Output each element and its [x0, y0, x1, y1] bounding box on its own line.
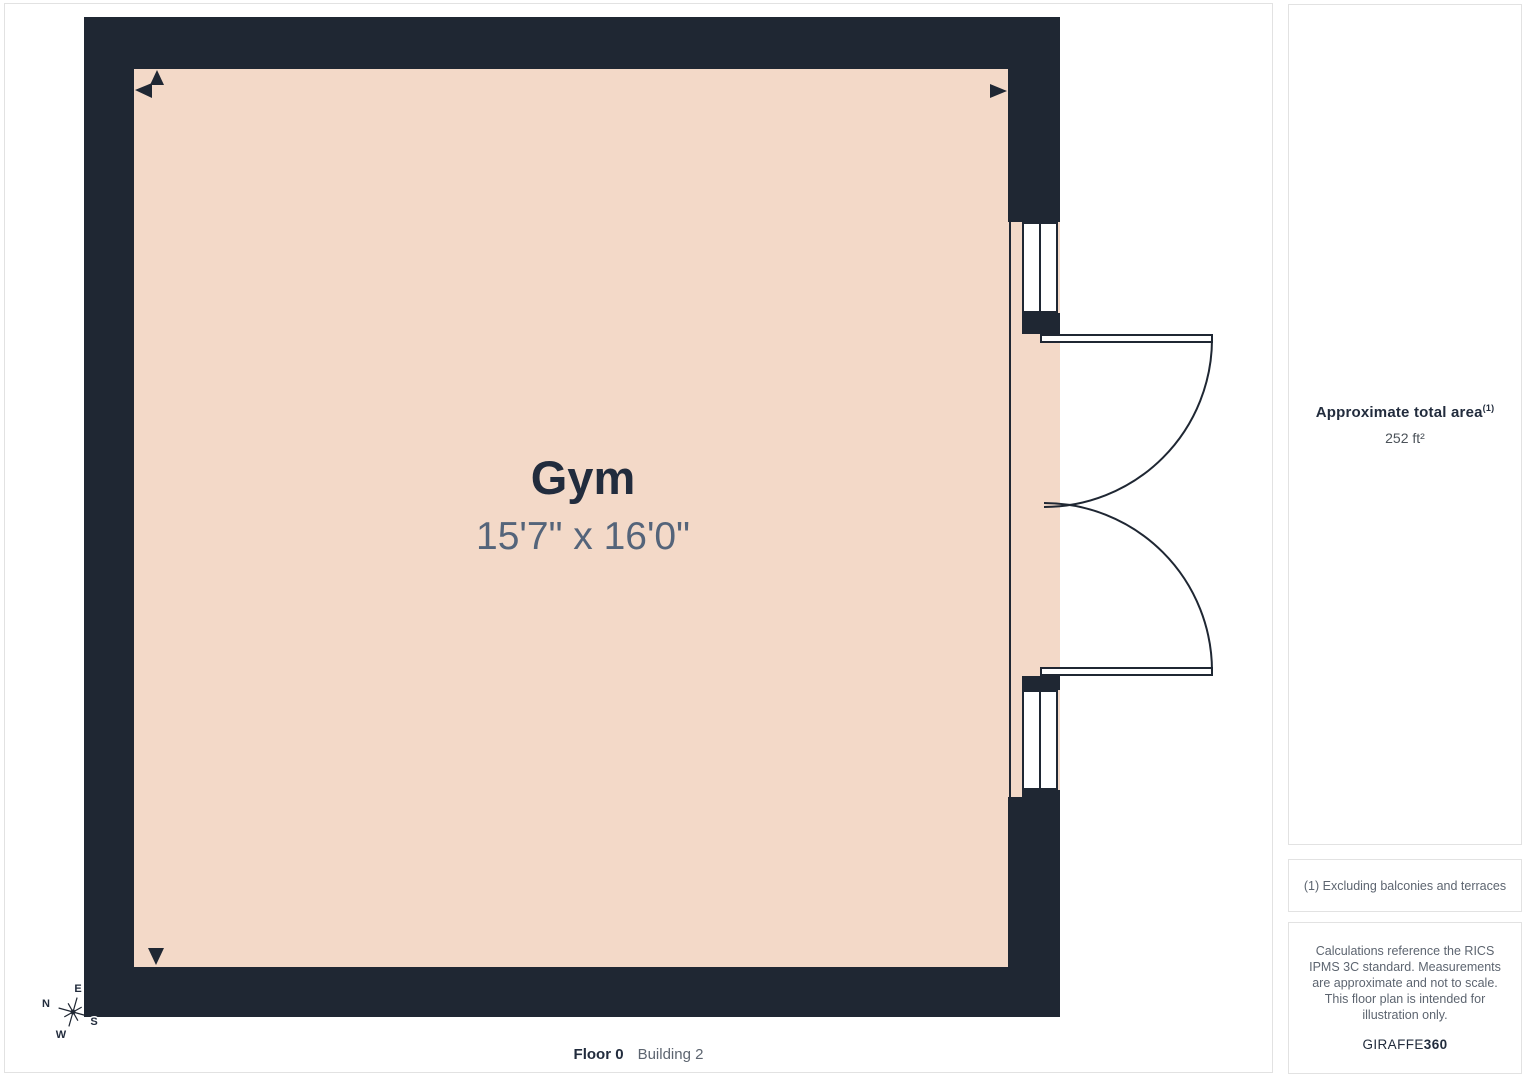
- area-value: 252 ft²: [1385, 430, 1425, 446]
- footnote-text: (1) Excluding balconies and terraces: [1304, 879, 1506, 893]
- building-number: Building 2: [638, 1046, 704, 1063]
- room-name: Gym: [476, 450, 690, 506]
- sidebar-area-section: Approximate total area(1) 252 ft²: [1288, 4, 1522, 845]
- floor-label: Floor 0Building 2: [4, 1046, 1273, 1063]
- giraffe360-logo: GIRAFFE360: [1362, 1037, 1447, 1052]
- room-boundary-line: [1009, 222, 1011, 797]
- door-leaf-bottom: [1040, 667, 1213, 676]
- wall-segment: [1022, 790, 1060, 800]
- sidebar-disclaimer-section: Calculations reference the RICS IPMS 3C …: [1288, 922, 1522, 1074]
- floorplan-page: Gym 15'7" x 16'0" N E S W Floor 0Buildin…: [0, 0, 1527, 1080]
- floor-number: Floor 0: [574, 1046, 624, 1063]
- sidebar-footnote-section: (1) Excluding balconies and terraces: [1288, 859, 1522, 912]
- wall-segment: [1022, 313, 1060, 334]
- area-heading: Approximate total area(1): [1316, 403, 1495, 421]
- window-pane-divider: [1039, 224, 1041, 311]
- wall-segment: [1022, 676, 1060, 690]
- room-dimensions: 15'7" x 16'0": [476, 514, 690, 560]
- door-leaf-top: [1040, 334, 1213, 343]
- window-pane-divider: [1039, 692, 1041, 788]
- disclaimer-text: Calculations reference the RICS IPMS 3C …: [1303, 944, 1507, 1023]
- room-label: Gym 15'7" x 16'0": [476, 450, 690, 560]
- window-upper: [1022, 222, 1058, 313]
- window-lower: [1022, 690, 1058, 790]
- footnote-ref: (1): [1483, 403, 1495, 413]
